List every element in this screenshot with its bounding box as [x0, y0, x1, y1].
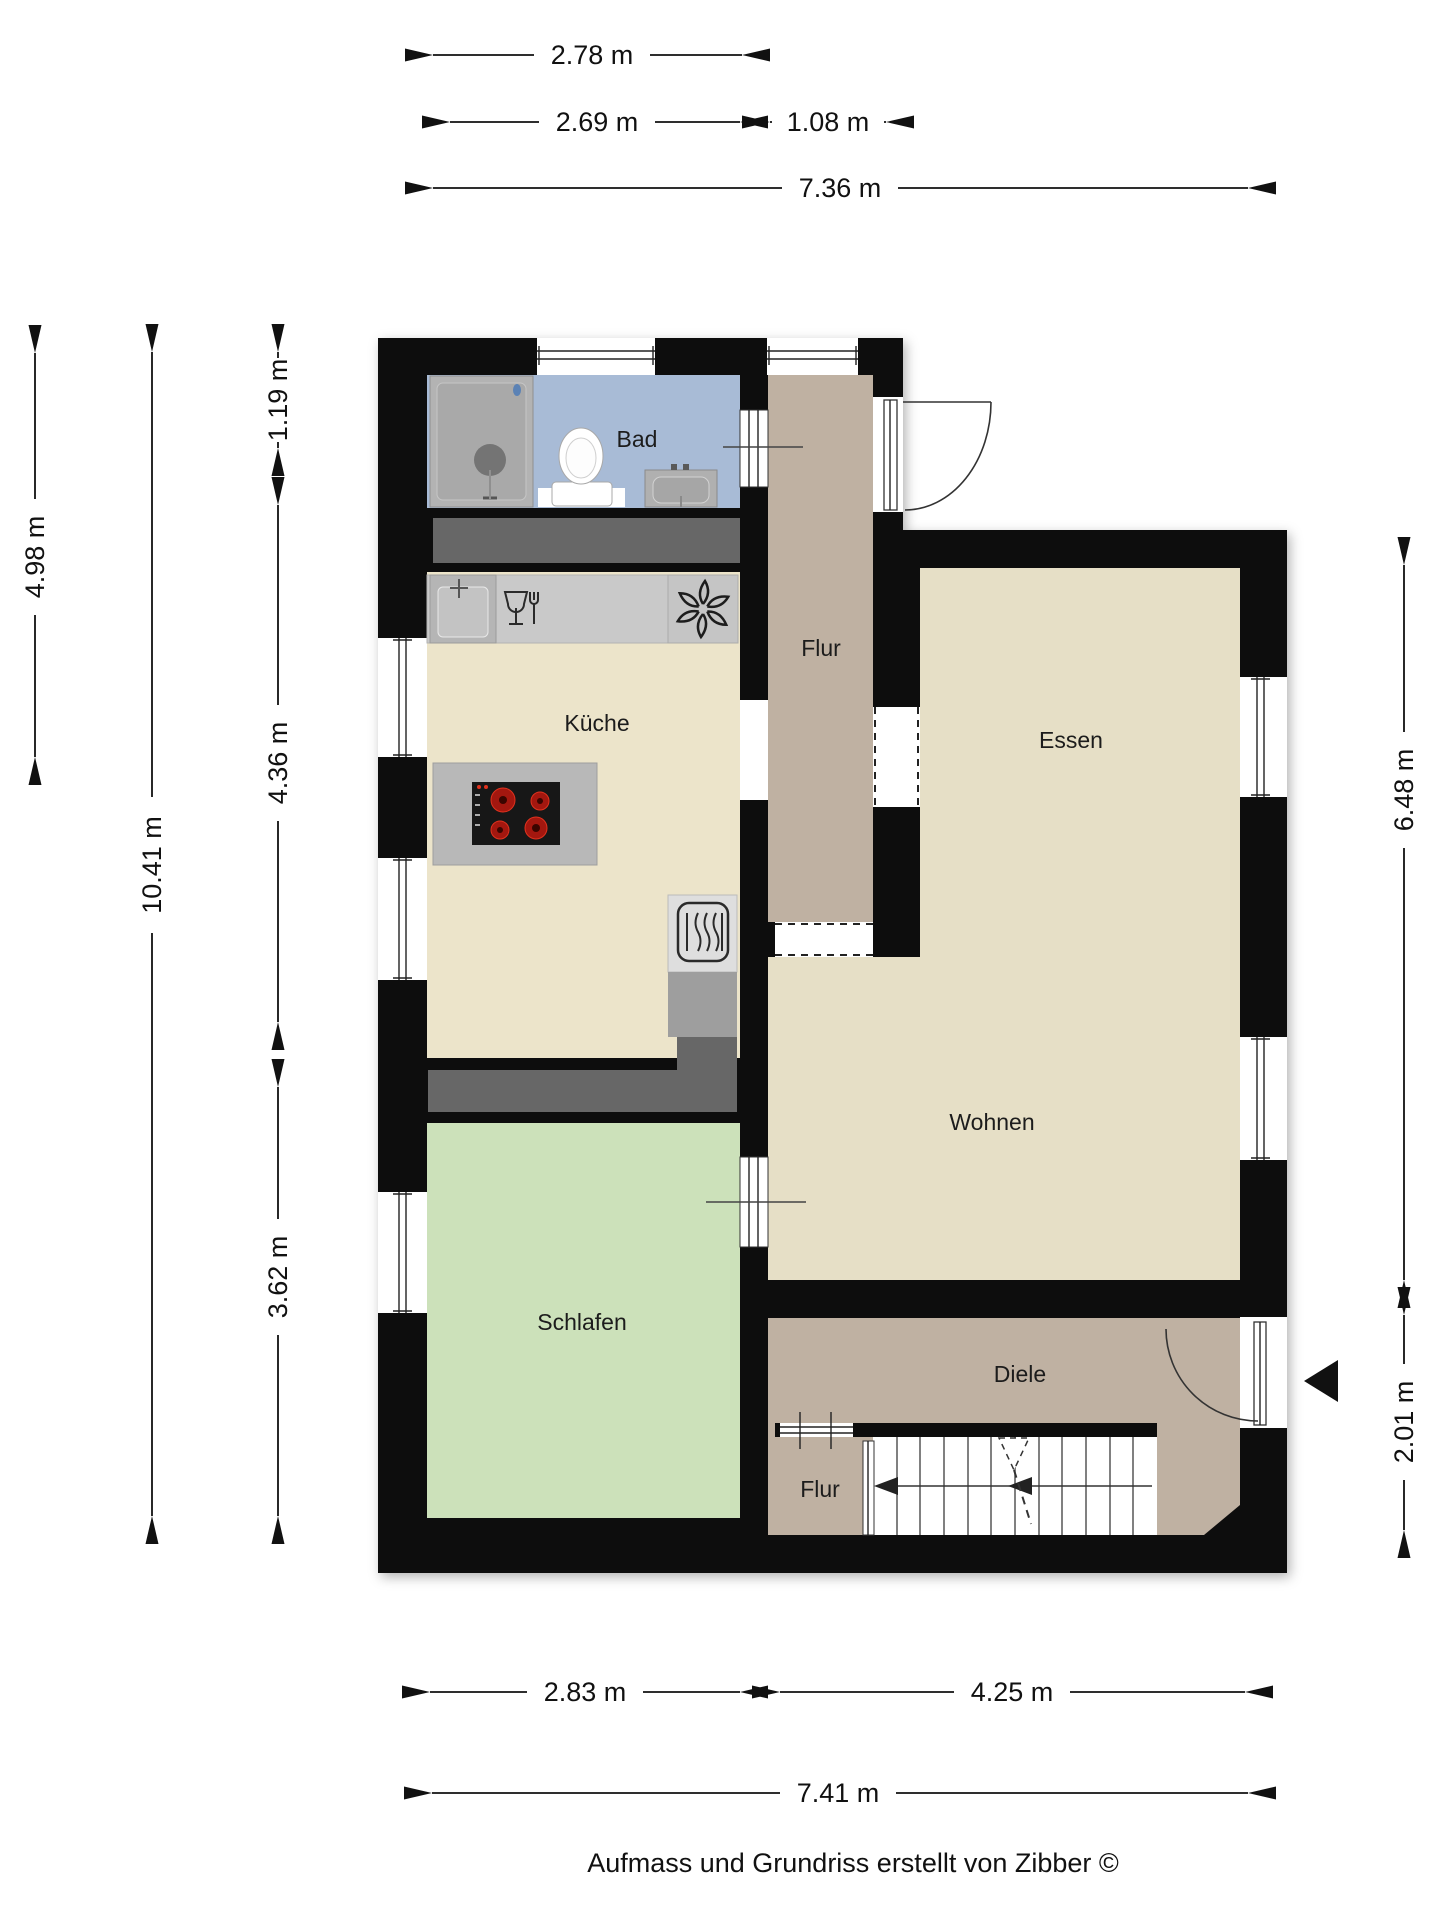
window-right-essen [1240, 677, 1287, 797]
svg-text:7.36 m: 7.36 m [799, 173, 882, 203]
extractor-fan-icon [668, 575, 738, 643]
window-flur-stairs [863, 1441, 874, 1535]
kitchen-sink-icon [430, 575, 496, 643]
label-flur-top: Flur [801, 635, 841, 661]
label-schlafen: Schlafen [537, 1309, 627, 1335]
svg-text:10.41 m: 10.41 m [137, 816, 167, 914]
svg-text:4.25 m: 4.25 m [971, 1677, 1054, 1707]
label-bad: Bad [617, 426, 658, 452]
label-kueche: Küche [564, 710, 629, 736]
label-essen: Essen [1039, 727, 1103, 753]
svg-text:2.01 m: 2.01 m [1389, 1381, 1419, 1464]
svg-text:2.78 m: 2.78 m [551, 40, 634, 70]
washbasin-icon [645, 464, 717, 507]
oven-icon [668, 895, 737, 972]
label-flur-bottom: Flur [800, 1476, 840, 1502]
svg-text:2.69 m: 2.69 m [556, 107, 639, 137]
svg-text:3.62 m: 3.62 m [263, 1236, 293, 1319]
svg-text:6.48 m: 6.48 m [1389, 749, 1419, 832]
passage-flur-essen [873, 707, 920, 807]
svg-text:7.41 m: 7.41 m [797, 1778, 880, 1808]
shower-icon [430, 376, 533, 507]
sideboard-right-column [677, 1037, 737, 1077]
stove-icon [433, 763, 597, 865]
passage-flur-wohnen [775, 922, 873, 957]
window-left-kueche-2 [378, 858, 427, 980]
wardrobe-under-bad [433, 518, 740, 563]
svg-text:2.83 m: 2.83 m [544, 1677, 627, 1707]
footer-credit: Aufmass und Grundriss erstellt von Zibbe… [587, 1848, 1119, 1878]
floorplan-canvas: Bad Flur Küche Essen Wohnen Schlafen Die… [0, 0, 1439, 1919]
label-wohnen: Wohnen [949, 1109, 1034, 1135]
svg-text:1.19 m: 1.19 m [263, 359, 293, 442]
svg-text:4.98 m: 4.98 m [20, 516, 50, 599]
window-left-schlafen [378, 1192, 427, 1313]
svg-text:1.08 m: 1.08 m [787, 107, 870, 137]
label-diele: Diele [994, 1361, 1046, 1387]
window-left-kueche-1 [378, 638, 427, 757]
window-right-wohnen [1240, 1037, 1287, 1160]
dim-108: 1.08 m [770, 105, 886, 139]
svg-text:4.36 m: 4.36 m [263, 722, 293, 805]
opening-kueche-flur [740, 700, 768, 800]
kitchen-tall-cabinet [668, 972, 737, 1037]
floorplan-page: Bad Flur Küche Essen Wohnen Schlafen Die… [0, 0, 1439, 1919]
window-top-flur [767, 338, 858, 375]
window-top-bad [537, 338, 655, 375]
dim-119: 1.19 m [261, 352, 295, 448]
